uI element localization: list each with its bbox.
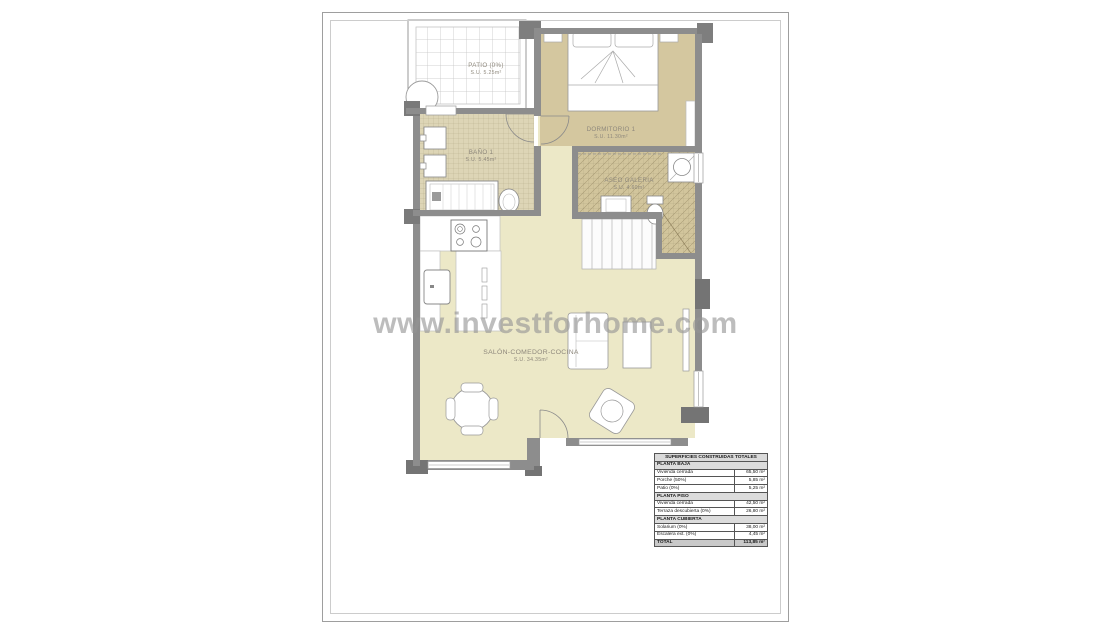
watermark: www.investforhome.com	[323, 307, 788, 341]
row-label: Vivienda cerrada	[655, 500, 735, 508]
plan-page: PATIO (0%) S.U. 5.25m² DORMITORIO 1 S.U.…	[322, 12, 789, 622]
wardrobe	[686, 101, 695, 149]
bathroom-sink	[424, 155, 446, 177]
salon-area-label: S.U. 34.35m²	[514, 357, 548, 363]
dormitorio-label: DORMITORIO 1	[587, 126, 636, 133]
stairs-area	[582, 219, 656, 269]
shower-drain	[674, 159, 691, 176]
patio-door-threshold	[426, 106, 456, 115]
patio-area-label: S.U. 5.25m²	[471, 70, 502, 76]
wall-pillar	[695, 279, 710, 309]
cabinet-handle	[482, 268, 487, 282]
wall-segment	[572, 152, 578, 218]
row-label: Porche (50%)	[655, 477, 735, 485]
bano-label: BAÑO 1	[469, 149, 494, 156]
table-row: Patio (0%)5,25 m²	[655, 485, 768, 493]
row-label: Terraza descubierta (0%)	[655, 508, 735, 516]
row-label: Solarium (0%)	[655, 524, 735, 532]
row-value: 42,50 m²	[735, 500, 768, 508]
wall-segment	[406, 108, 426, 114]
chair	[461, 426, 483, 435]
cabinet-handle	[482, 286, 487, 300]
wall-segment	[572, 146, 695, 152]
dormitorio-area-label: S.U. 11.30m²	[594, 134, 628, 140]
wall-corner	[681, 407, 709, 423]
salon-label: SALÓN-COMEDOR-COCINA	[483, 347, 579, 356]
faucet	[420, 163, 426, 169]
wall-segment	[456, 108, 541, 114]
dining-table	[451, 388, 493, 430]
chair	[461, 383, 483, 392]
wall-segment	[526, 28, 711, 34]
wall-segment	[656, 253, 702, 259]
wall-segment	[413, 210, 541, 216]
kitchen-sink	[424, 270, 450, 304]
table-row: Porche (50%)5,85 m²	[655, 477, 768, 485]
section-header: PLANTA PISO	[655, 492, 768, 500]
total-label: TOTAL	[655, 539, 735, 547]
bathroom-sink	[424, 127, 446, 149]
row-value: 38,00 m²	[735, 524, 768, 532]
stove	[451, 220, 487, 251]
aseo-area-label: S.U. 4.60m²	[614, 185, 645, 191]
row-label: Escalera ext. (0%)	[655, 531, 735, 539]
pillow	[573, 32, 611, 47]
wall-segment	[695, 34, 702, 153]
wall-segment	[695, 183, 702, 251]
table-row: Solarium (0%)38,00 m²	[655, 524, 768, 532]
wall-segment	[534, 146, 541, 210]
total-value: 113,85 m²	[735, 539, 768, 547]
row-value: 4,45 m²	[735, 531, 768, 539]
wall-segment	[413, 108, 420, 466]
toilet	[499, 189, 519, 213]
table-row: Vivienda cerrada65,50 m²	[655, 469, 768, 477]
aseo-label: ASEO GALERIA	[604, 177, 654, 184]
chair	[489, 398, 498, 420]
section-header: PLANTA BAJA	[655, 461, 768, 469]
row-value: 65,50 m²	[735, 469, 768, 477]
pillow	[615, 32, 653, 47]
chair	[446, 398, 455, 420]
faucet	[420, 135, 426, 141]
patio-label: PATIO (0%)	[468, 62, 503, 69]
kitchen-sink-drain	[430, 285, 434, 288]
bano-area-label: S.U. 5.45m²	[466, 157, 497, 163]
bathtub-drain	[432, 192, 441, 201]
wall-segment	[534, 28, 541, 116]
row-value: 5,85 m²	[735, 477, 768, 485]
wall-segment	[572, 212, 662, 219]
patio	[406, 20, 526, 113]
row-value: 26,80 m²	[735, 508, 768, 516]
row-label: Vivienda cerrada	[655, 469, 735, 477]
table-row: Terraza descubierta (0%)26,80 m²	[655, 508, 768, 516]
table-row: Vivienda cerrada42,50 m²	[655, 500, 768, 508]
row-value: 5,25 m²	[735, 485, 768, 493]
toilet-tank	[647, 196, 663, 204]
table-row: Escalera ext. (0%)4,45 m²	[655, 531, 768, 539]
stairs	[582, 219, 656, 269]
section-header: PLANTA CUBIERTA	[655, 516, 768, 524]
surfaces-table: SUPERFICIES CONSTRUIDAS TOTALES PLANTA B…	[654, 453, 768, 547]
row-label: Patio (0%)	[655, 485, 735, 493]
surfaces-table-title: SUPERFICIES CONSTRUIDAS TOTALES	[655, 454, 768, 462]
